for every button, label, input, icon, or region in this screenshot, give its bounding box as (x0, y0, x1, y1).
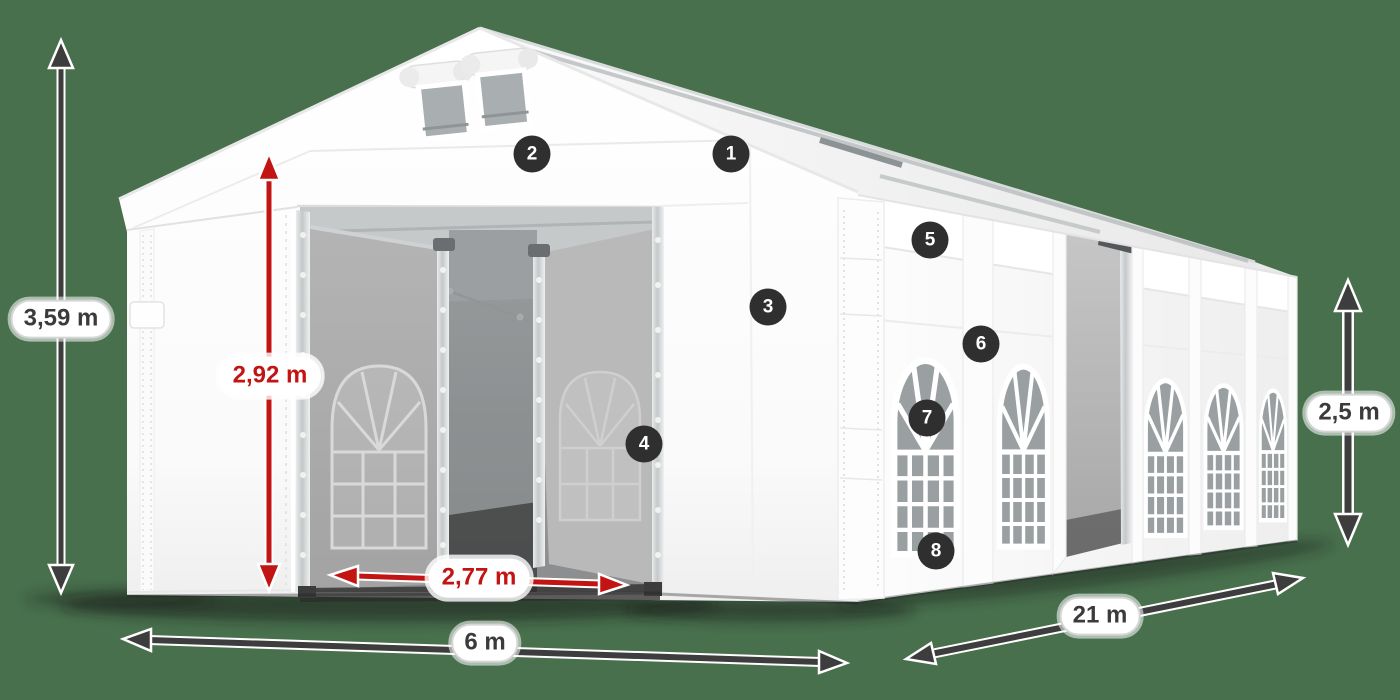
mesh-window-print (332, 366, 426, 548)
callout-badge-8[interactable]: 8 (918, 533, 955, 570)
side-window (1205, 386, 1241, 528)
front-wall-strap (140, 229, 154, 592)
vent-window (418, 83, 469, 140)
callout-badge-7[interactable]: 7 (909, 400, 946, 437)
mesh-door-left (304, 226, 455, 590)
vent-window (477, 70, 529, 129)
dimension-label-side-height: 2,5 m (1305, 394, 1392, 433)
side-window (1260, 391, 1285, 521)
dimension-label-entrance-height: 2,92 m (220, 357, 321, 396)
mesh-door-right (528, 228, 660, 586)
callout-badge-3[interactable]: 3 (750, 289, 787, 326)
entrance-pole-right (652, 207, 664, 592)
dimension-label-entrance-width: 2,77 m (429, 559, 530, 598)
callout-badge-1[interactable]: 1 (713, 136, 750, 173)
dimension-label-length: 21 m (1060, 597, 1141, 636)
dimension-label-width: 6 m (451, 624, 518, 663)
callout-badge-6[interactable]: 6 (963, 326, 1000, 363)
side-window (894, 361, 957, 555)
strap-buckle (130, 302, 164, 328)
side-window (1146, 381, 1185, 536)
entrance-pole-left (296, 210, 310, 592)
side-window (1000, 367, 1048, 547)
tent-illustration (0, 0, 1400, 700)
callout-badge-5[interactable]: 5 (912, 222, 949, 259)
side-door-opening (1066, 230, 1140, 557)
callout-badge-4[interactable]: 4 (626, 426, 663, 463)
callout-badge-2[interactable]: 2 (514, 136, 551, 173)
corner-strap (838, 198, 884, 600)
product-dimension-diagram: 3,59 m 2,92 m 2,77 m 6 m 21 m 2,5 m 1 2 … (0, 0, 1400, 700)
front-entrance (293, 207, 664, 602)
dimension-label-total-height: 3,59 m (11, 300, 112, 339)
